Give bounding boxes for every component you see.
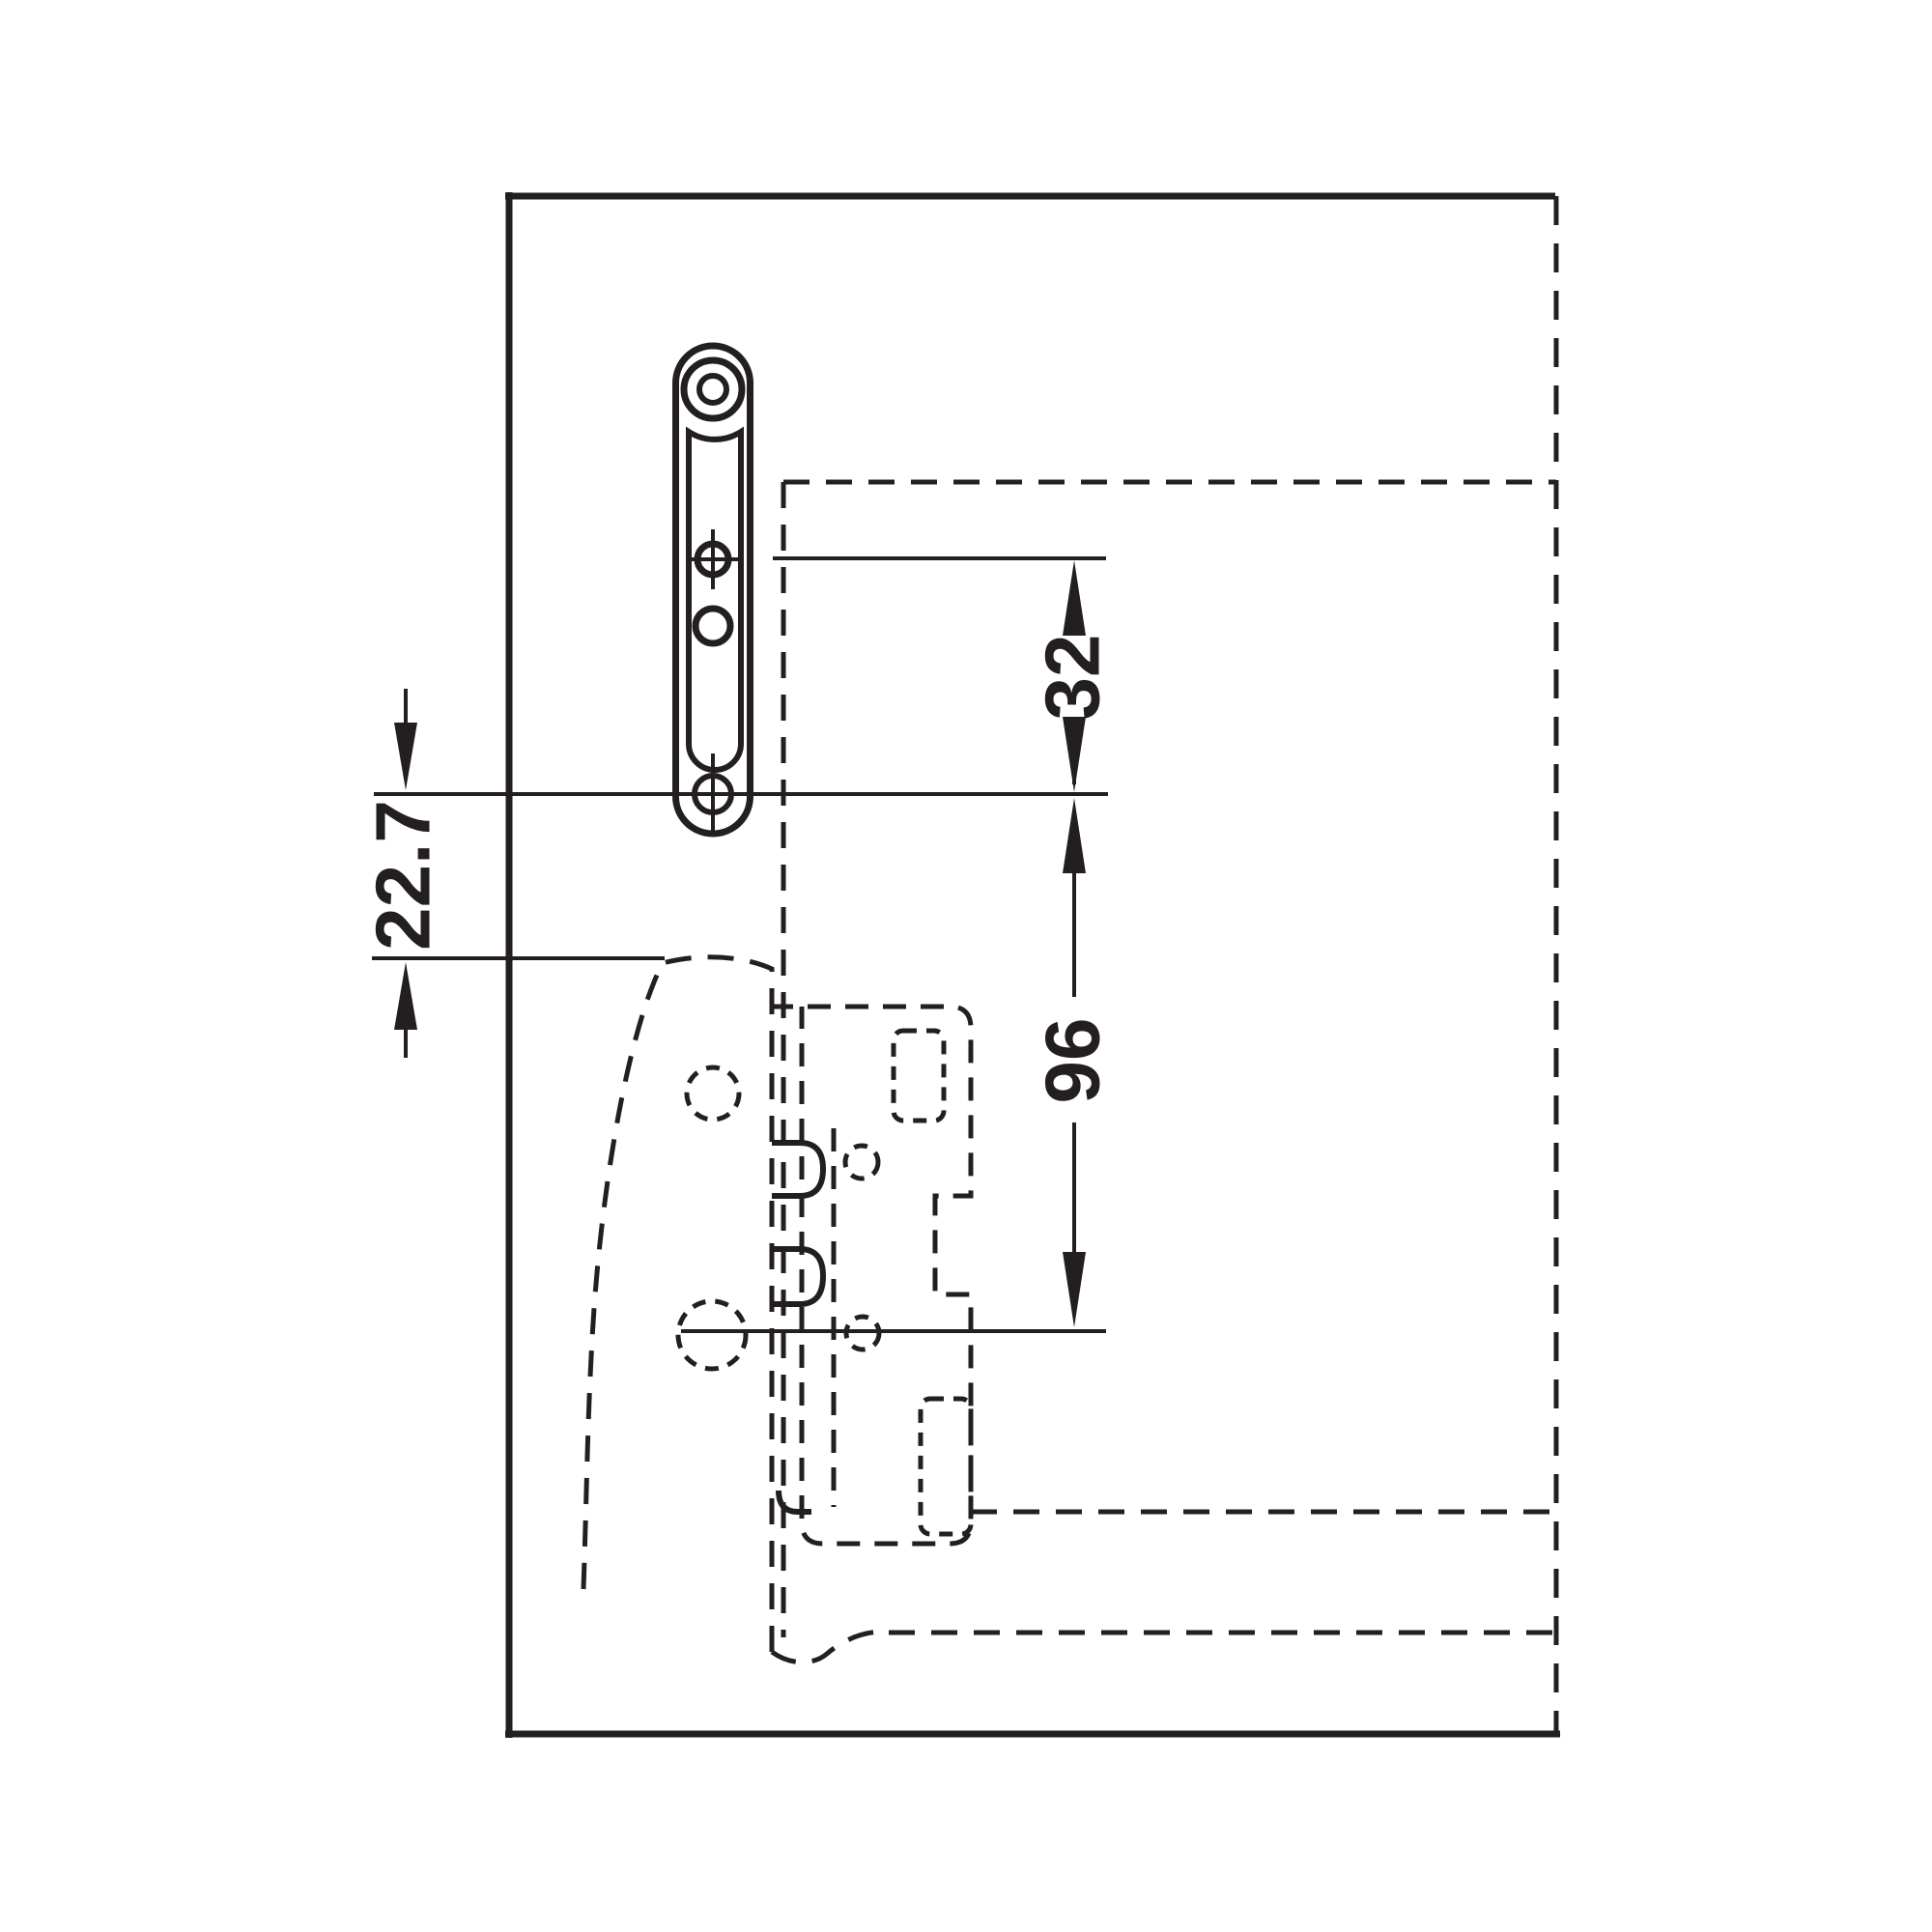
arrowhead-up-icon	[394, 962, 417, 1030]
bracket-hook-upper	[772, 1143, 823, 1196]
dimension-96: 96	[1030, 798, 1116, 1327]
catch-lever-phantom	[583, 957, 889, 1662]
bracket-hole-upper-dashed	[845, 1146, 878, 1179]
bracket-hook-lower	[772, 1249, 823, 1304]
bracket-outline-dashed	[770, 1007, 971, 1544]
plate-middle-hole	[696, 609, 730, 643]
plate-slot	[689, 432, 741, 770]
lever-hole-dashed	[687, 1067, 739, 1120]
dimension-label-22-7: 22.7	[360, 800, 446, 951]
lever-pivot-hole-dashed	[678, 1301, 746, 1369]
drawer-front-phantom-outline	[783, 482, 1556, 1637]
cabinet-side-panel	[505, 192, 1560, 1738]
dimension-32: 32	[1030, 560, 1116, 792]
lever-outline-dashed	[583, 957, 772, 1652]
plate-top-ring	[684, 360, 742, 418]
arrowhead-down-icon	[1063, 1252, 1086, 1327]
lever-tip-dashed	[772, 1632, 889, 1662]
technical-drawing-canvas: 22.7 32 96	[0, 0, 1932, 1932]
dimension-label-96: 96	[1030, 1018, 1116, 1104]
installation-diagram: 22.7 32 96	[0, 0, 1932, 1932]
plate-top-hole	[699, 376, 726, 403]
arrowhead-down-icon	[394, 723, 417, 790]
dimension-label-32: 32	[1030, 635, 1116, 721]
front-bracket-phantom	[770, 1007, 971, 1544]
bracket-foot-detail	[779, 1491, 811, 1512]
mounting-plate	[676, 346, 751, 835]
bracket-upper-cutout-dashed	[894, 1031, 944, 1121]
bracket-lower-cutout-dashed	[921, 1399, 971, 1534]
arrowhead-down-icon	[1063, 717, 1086, 792]
dimension-22-7: 22.7	[360, 689, 446, 1058]
